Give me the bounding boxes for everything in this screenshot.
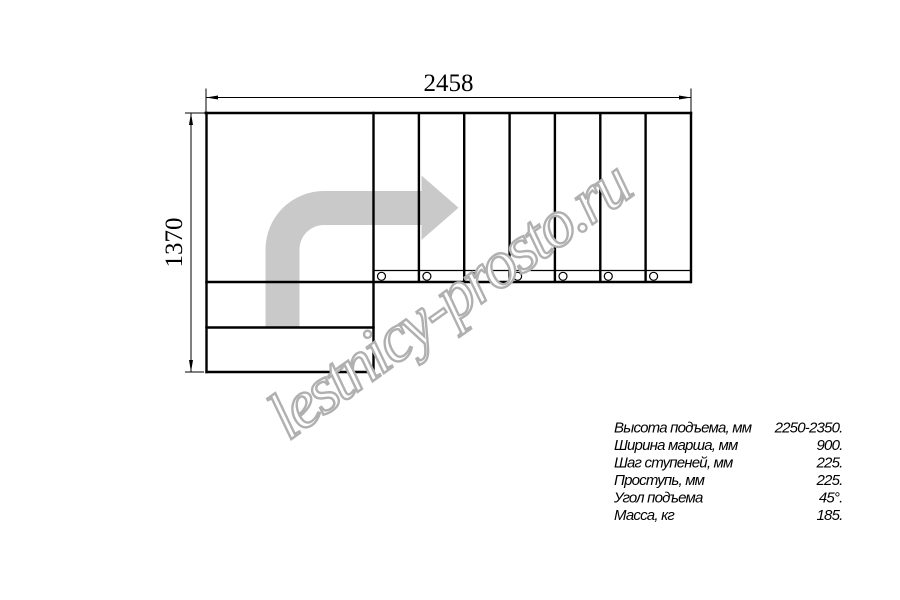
svg-text:45°.: 45°. <box>819 490 843 507</box>
svg-text:225.: 225. <box>816 455 843 472</box>
svg-text:Угол подъема: Угол подъема <box>613 490 703 507</box>
svg-text:Шаг ступеней, мм: Шаг ступеней, мм <box>614 455 733 472</box>
svg-text:1370: 1370 <box>161 218 188 268</box>
svg-text:Ширина марша, мм: Ширина марша, мм <box>614 437 738 454</box>
svg-text:Масса, кг: Масса, кг <box>614 507 675 524</box>
svg-text:2458: 2458 <box>424 70 474 97</box>
svg-text:2250-2350.: 2250-2350. <box>774 420 843 437</box>
svg-text:Высота подъема, мм: Высота подъема, мм <box>614 420 752 437</box>
svg-text:225.: 225. <box>816 472 843 489</box>
svg-text:185.: 185. <box>817 507 843 524</box>
svg-text:900.: 900. <box>817 437 843 454</box>
svg-text:Проступь, мм: Проступь, мм <box>614 472 705 489</box>
